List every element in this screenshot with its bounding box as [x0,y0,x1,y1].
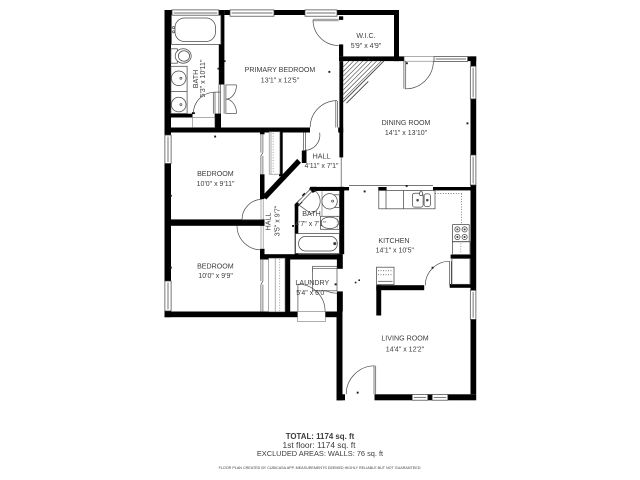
svg-text:DINING ROOM: DINING ROOM [382,119,431,127]
svg-text:LIVING ROOM: LIVING ROOM [381,334,428,342]
svg-text:5'3" x 10'11": 5'3" x 10'11" [200,59,207,97]
svg-text:10'0" x 9'11": 10'0" x 9'11" [197,181,235,188]
svg-text:EXCLUDED AREAS: WALLS: 76 sq.: EXCLUDED AREAS: WALLS: 76 sq. ft [257,449,383,458]
svg-text:14'4" x 12'2": 14'4" x 12'2" [386,346,425,353]
svg-text:10'0" x 9'9": 10'0" x 9'9" [198,273,233,280]
svg-text:14'1" x 13'10": 14'1" x 13'10" [385,130,428,137]
svg-text:W.I.C.: W.I.C. [356,32,375,40]
svg-text:LAUNDRY: LAUNDRY [295,279,329,287]
svg-text:BATH: BATH [192,70,200,88]
svg-text:BEDROOM: BEDROOM [197,170,234,178]
svg-text:5'4" x 6'0": 5'4" x 6'0" [296,290,327,297]
svg-text:HALL: HALL [265,213,273,231]
svg-text:5'9" x 4'9": 5'9" x 4'9" [351,43,382,50]
svg-text:4'7" x 7'1": 4'7" x 7'1" [295,221,326,228]
svg-text:KITCHEN: KITCHEN [378,237,409,245]
svg-text:4'11" x 7'1": 4'11" x 7'1" [305,163,339,170]
svg-text:BATH: BATH [302,210,320,218]
svg-text:14'1" x 10'5": 14'1" x 10'5" [376,247,415,254]
svg-text:FLOOR PLAN CREATED BY CUBICASA: FLOOR PLAN CREATED BY CUBICASA APP. MEAS… [219,466,422,470]
svg-text:13'1" x 12'5": 13'1" x 12'5" [261,77,300,84]
svg-text:PRIMARY BEDROOM: PRIMARY BEDROOM [245,66,316,74]
svg-text:HALL: HALL [313,152,331,160]
svg-text:3'5" x 9'7": 3'5" x 9'7" [274,205,281,236]
svg-text:BEDROOM: BEDROOM [197,262,234,270]
